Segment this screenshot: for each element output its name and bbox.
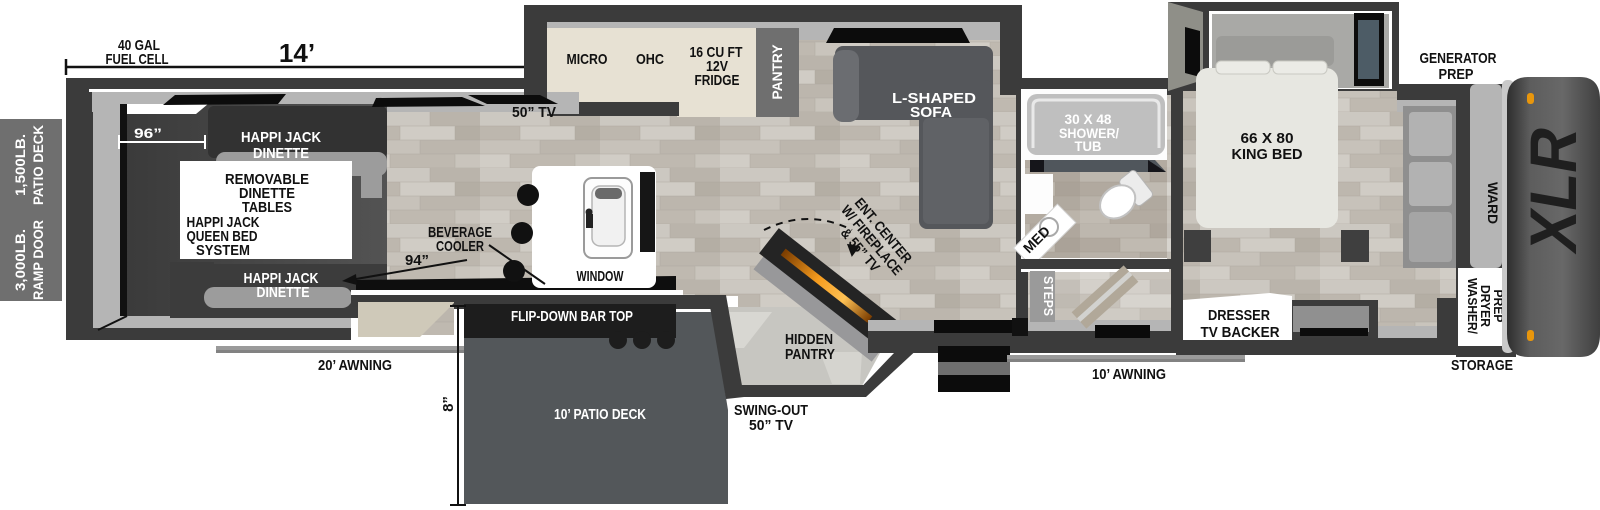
svg-text:TUB: TUB (1075, 138, 1102, 154)
svg-text:8”: 8” (440, 396, 457, 412)
svg-text:3,000LB.: 3,000LB. (12, 229, 28, 291)
svg-text:DINETTE: DINETTE (257, 284, 310, 301)
svg-text:WINDOW: WINDOW (577, 268, 625, 285)
svg-text:DINETTE: DINETTE (253, 145, 309, 162)
svg-text:RAMP DOOR: RAMP DOOR (30, 220, 46, 300)
svg-text:PANTRY: PANTRY (785, 346, 835, 363)
svg-text:1,500LB.: 1,500LB. (12, 134, 28, 196)
svg-text:KING BED: KING BED (1232, 146, 1303, 163)
svg-text:WASHER/: WASHER/ (1465, 278, 1480, 334)
svg-text:STEPS: STEPS (1041, 276, 1056, 316)
svg-text:50” TV: 50” TV (749, 417, 793, 434)
svg-text:DRESSER: DRESSER (1208, 307, 1270, 324)
svg-text:14’: 14’ (279, 38, 315, 68)
svg-text:SYSTEM: SYSTEM (196, 242, 250, 259)
svg-text:STORAGE: STORAGE (1451, 357, 1513, 374)
svg-text:96”: 96” (134, 125, 162, 141)
svg-text:PANTRY: PANTRY (769, 44, 785, 100)
svg-text:FLIP-DOWN BAR TOP: FLIP-DOWN BAR TOP (511, 308, 633, 325)
svg-text:20’ AWNING: 20’ AWNING (318, 357, 392, 374)
svg-text:SOFA: SOFA (910, 104, 952, 121)
svg-text:WARD: WARD (1485, 182, 1501, 224)
svg-text:GENERATOR: GENERATOR (1420, 50, 1497, 67)
svg-text:50” TV: 50” TV (512, 104, 556, 121)
svg-text:FRIDGE: FRIDGE (695, 72, 740, 89)
svg-text:10’ AWNING: 10’ AWNING (1092, 366, 1166, 383)
svg-text:TV BACKER: TV BACKER (1201, 324, 1280, 341)
svg-text:66 X 80: 66 X 80 (1241, 130, 1294, 147)
svg-text:DRYER: DRYER (1478, 285, 1493, 328)
svg-text:FUEL CELL: FUEL CELL (106, 51, 169, 68)
svg-text:10’ PATIO DECK: 10’ PATIO DECK (554, 406, 646, 423)
svg-text:XLR: XLR (1517, 121, 1590, 258)
svg-text:HAPPI JACK: HAPPI JACK (241, 129, 321, 146)
svg-text:PREP: PREP (1439, 66, 1474, 83)
svg-text:MICRO: MICRO (567, 51, 608, 68)
svg-text:PATIO DECK: PATIO DECK (30, 125, 46, 205)
svg-text:COOLER: COOLER (436, 238, 484, 255)
svg-text:OHC: OHC (636, 51, 664, 68)
